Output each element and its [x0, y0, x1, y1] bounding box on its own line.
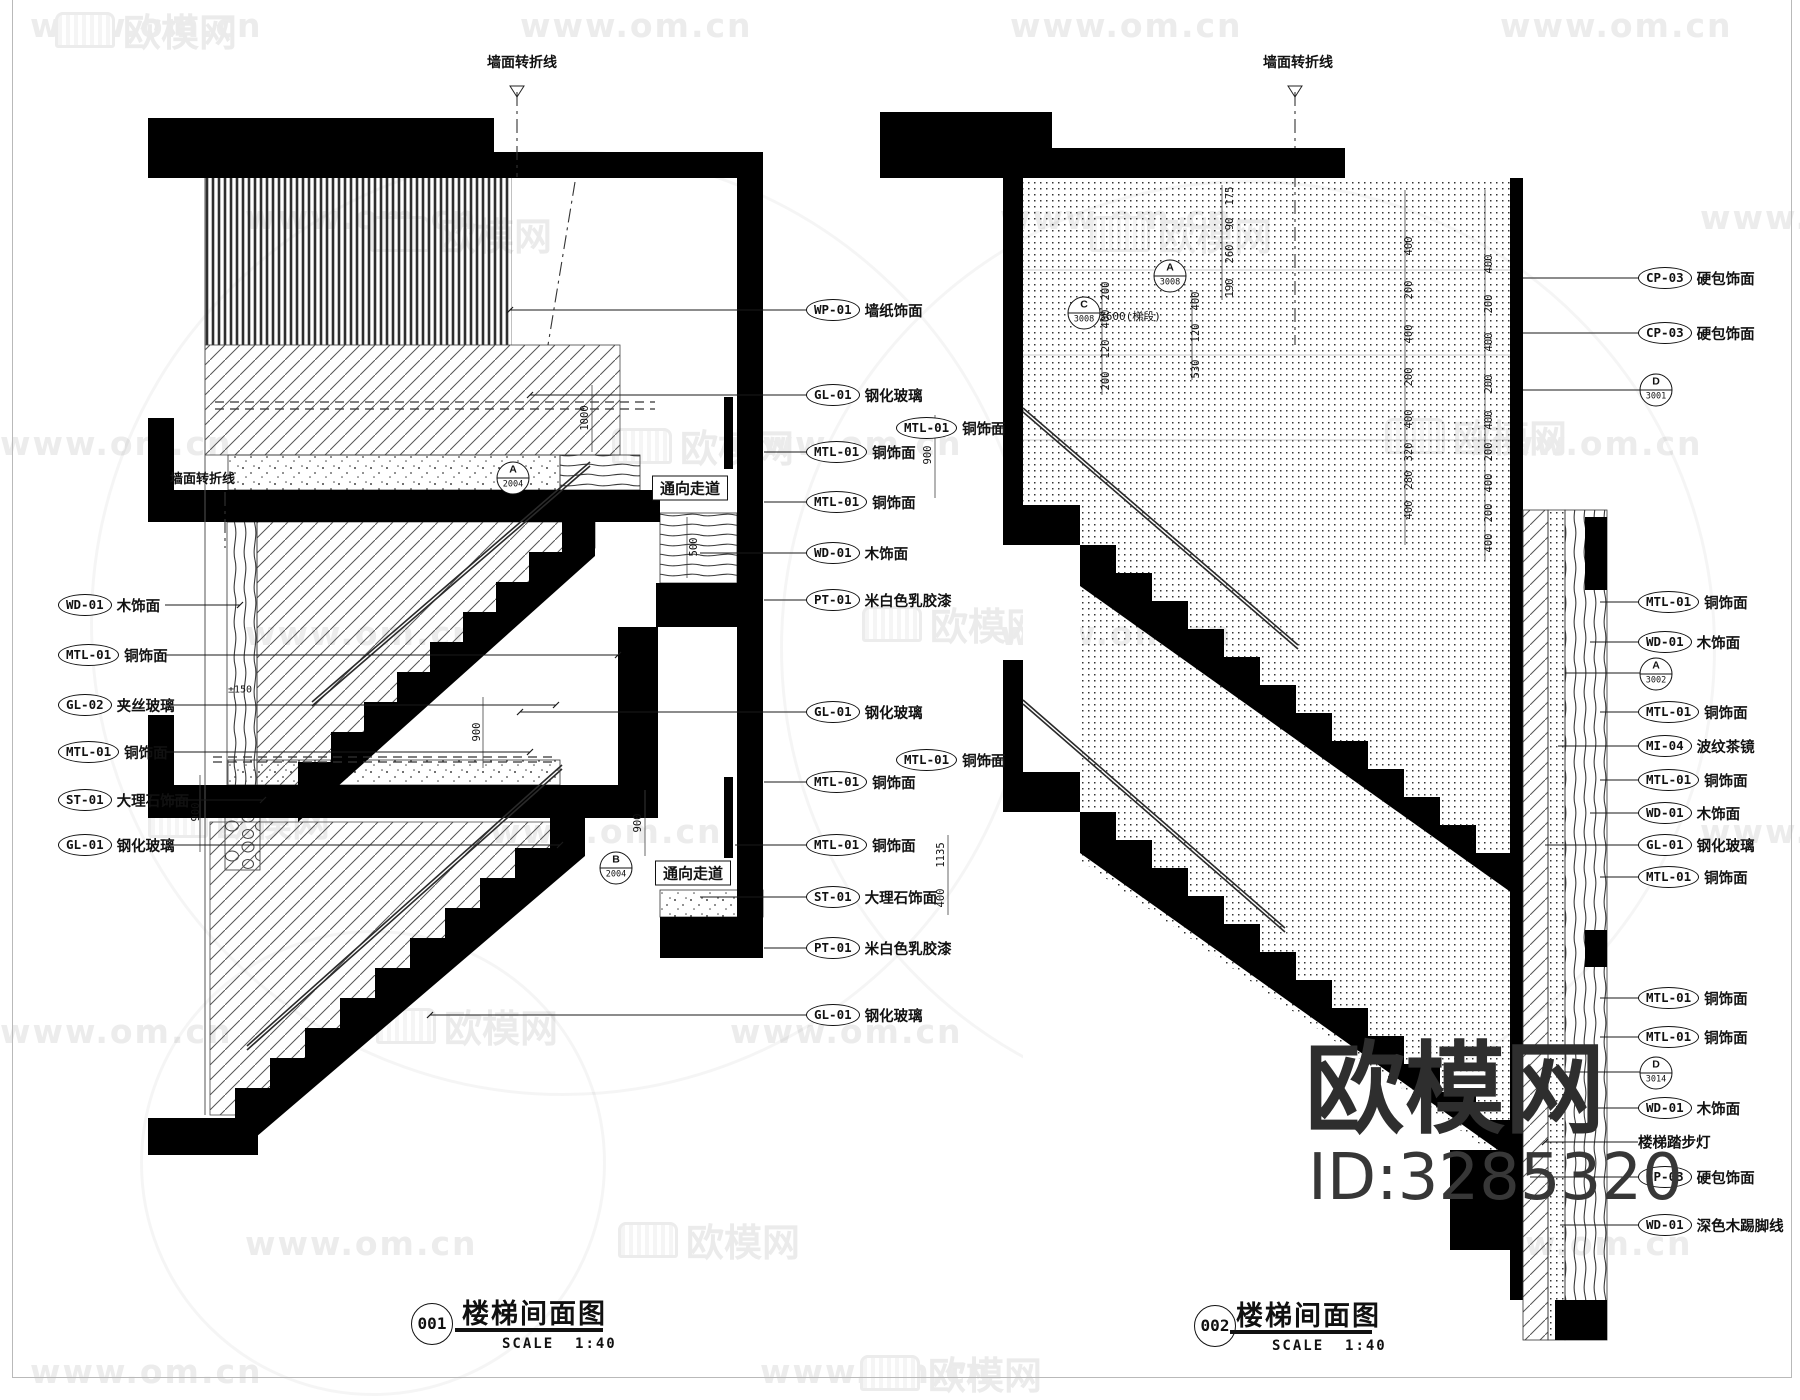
- dimension: 200: [1483, 504, 1495, 523]
- dimension: 120: [1100, 340, 1112, 359]
- material-callout: GL-01钢化玻璃: [806, 1004, 923, 1026]
- material-callout: MTL-01铜饰面: [1638, 1026, 1748, 1048]
- dimension: 90: [1224, 218, 1236, 231]
- dimension: 120: [1190, 324, 1202, 343]
- dimension: 320: [1403, 443, 1415, 462]
- material-callout: MTL-01铜饰面: [58, 741, 168, 763]
- material-callout: MTL-01铜饰面: [1638, 591, 1748, 613]
- material-callout: WD-01木饰面: [1638, 631, 1740, 653]
- dimension: 400: [1483, 255, 1495, 274]
- level-mark: ±150: [228, 685, 252, 696]
- material-callout: MTL-01铜饰面: [1638, 701, 1748, 723]
- title-rule: [1230, 1330, 1372, 1334]
- material-callout: PT-01米白色乳胶漆: [806, 937, 952, 959]
- dimension: 500: [688, 538, 700, 557]
- material-callout: MTL-01铜饰面: [1638, 987, 1748, 1009]
- watermark-brand-dark: 欧模网: [1305, 1040, 1605, 1140]
- drawing-title: 楼梯间面图: [462, 1292, 607, 1331]
- dimension: 400: [1403, 410, 1415, 429]
- dimension: 400: [1100, 310, 1112, 329]
- corridor-label: 通向走道: [652, 476, 728, 501]
- wall-fold-label: 墙面转折线: [1263, 52, 1333, 72]
- dimension: 900: [632, 814, 644, 833]
- detail-marker: A3002: [1640, 658, 1673, 691]
- material-callout: ST-01大理石饰面: [58, 789, 189, 811]
- dimension: 200: [1483, 375, 1495, 394]
- dimension: 200: [1100, 282, 1112, 301]
- dimension: 400: [1403, 501, 1415, 520]
- material-callout: GL-01钢化玻璃: [1638, 834, 1755, 856]
- material-callout: WD-01木饰面: [58, 594, 160, 616]
- dimension: 200: [1100, 372, 1112, 391]
- drawing-number: 002: [1194, 1305, 1236, 1347]
- dimension: 200: [1403, 281, 1415, 300]
- drawing-number: 001: [411, 1303, 453, 1345]
- dimension: 1000: [579, 405, 591, 430]
- dimension: 400: [1403, 237, 1415, 256]
- dimension: 280: [1403, 471, 1415, 490]
- detail-marker: D3014: [1640, 1057, 1673, 1090]
- watermark-id: ID:3285320: [1308, 1146, 1683, 1210]
- wall-fold-label: 墙面转折线: [487, 52, 557, 72]
- detail-marker: A2004: [497, 462, 530, 495]
- material-callout: MTL-01铜饰面: [806, 771, 916, 793]
- dimension: 400: [1403, 325, 1415, 344]
- dimension: 1135: [935, 842, 947, 867]
- material-callout: WD-01木饰面: [806, 542, 908, 564]
- material-callout: MTL-01铜饰面: [896, 749, 1006, 771]
- corridor-label: 通向走道: [655, 861, 731, 886]
- dimension: 900: [922, 446, 934, 465]
- material-callout: WD-01木饰面: [1638, 1097, 1740, 1119]
- material-callout: MTL-01铜饰面: [806, 834, 916, 856]
- drawing-scale: SCALE 1:40: [502, 1336, 617, 1352]
- material-callout: MTL-01铜饰面: [58, 644, 168, 666]
- material-callout: WD-01深色木踢脚线: [1638, 1214, 1784, 1236]
- dimension: 400: [935, 889, 947, 908]
- dimension: 400: [1483, 333, 1495, 352]
- titleblock-001: 001 楼梯间面图 SCALE 1:40: [330, 1292, 630, 1362]
- material-callout: CP-03硬包饰面: [1638, 322, 1755, 344]
- material-callout: GL-01钢化玻璃: [58, 834, 175, 856]
- material-callout: MTL-01铜饰面: [896, 417, 1006, 439]
- dimension: 200: [1403, 368, 1415, 387]
- material-callout: MTL-01铜饰面: [806, 491, 916, 513]
- dimension: 530: [1190, 360, 1202, 379]
- wall-fold-label: 墙面转折线: [170, 468, 235, 487]
- material-callout: ST-01大理石饰面: [806, 886, 937, 908]
- detail-marker: B2004: [600, 852, 633, 885]
- dimension: 400: [1190, 292, 1202, 311]
- titleblock-002: 002 楼梯间面图 SCALE 1:40: [1130, 1292, 1430, 1362]
- dimension: 190: [1224, 279, 1236, 298]
- detail-marker: C3008: [1068, 297, 1101, 330]
- material-callout: WD-01木饰面: [1638, 802, 1740, 824]
- material-callout: GL-02夹丝玻璃: [58, 694, 175, 716]
- drawing-scale: SCALE 1:40: [1272, 1338, 1387, 1354]
- material-callout: MI-04波纹茶镜: [1638, 735, 1755, 757]
- dimension: 400: [1483, 474, 1495, 493]
- dimension: 175: [1224, 187, 1236, 206]
- material-callout: MTL-01铜饰面: [806, 441, 916, 463]
- cad-sheet: { "watermark": { "www": "www.om.cn", "br…: [0, 0, 1800, 1396]
- material-callout: CP-03硬包饰面: [1638, 267, 1755, 289]
- material-callout: GL-01钢化玻璃: [806, 701, 923, 723]
- dimension: 900: [190, 803, 202, 822]
- dimension: 900: [471, 723, 483, 742]
- dimension: 400: [1483, 411, 1495, 430]
- dimension: 200: [1483, 295, 1495, 314]
- material-callout: MTL-01铜饰面: [1638, 866, 1748, 888]
- dimension: 400: [1483, 534, 1495, 553]
- dimension: 200: [1483, 443, 1495, 462]
- title-rule: [455, 1328, 603, 1332]
- drawing-title: 楼梯间面图: [1236, 1294, 1381, 1333]
- material-callout: GL-01钢化玻璃: [806, 384, 923, 406]
- detail-marker: A3008: [1154, 260, 1187, 293]
- material-callout: MTL-01铜饰面: [1638, 769, 1748, 791]
- material-callout: WP-01墙纸饰面: [806, 299, 923, 321]
- detail-marker: D3001: [1640, 374, 1673, 407]
- material-callout: PT-01米白色乳胶漆: [806, 589, 952, 611]
- dimension: 260: [1224, 245, 1236, 264]
